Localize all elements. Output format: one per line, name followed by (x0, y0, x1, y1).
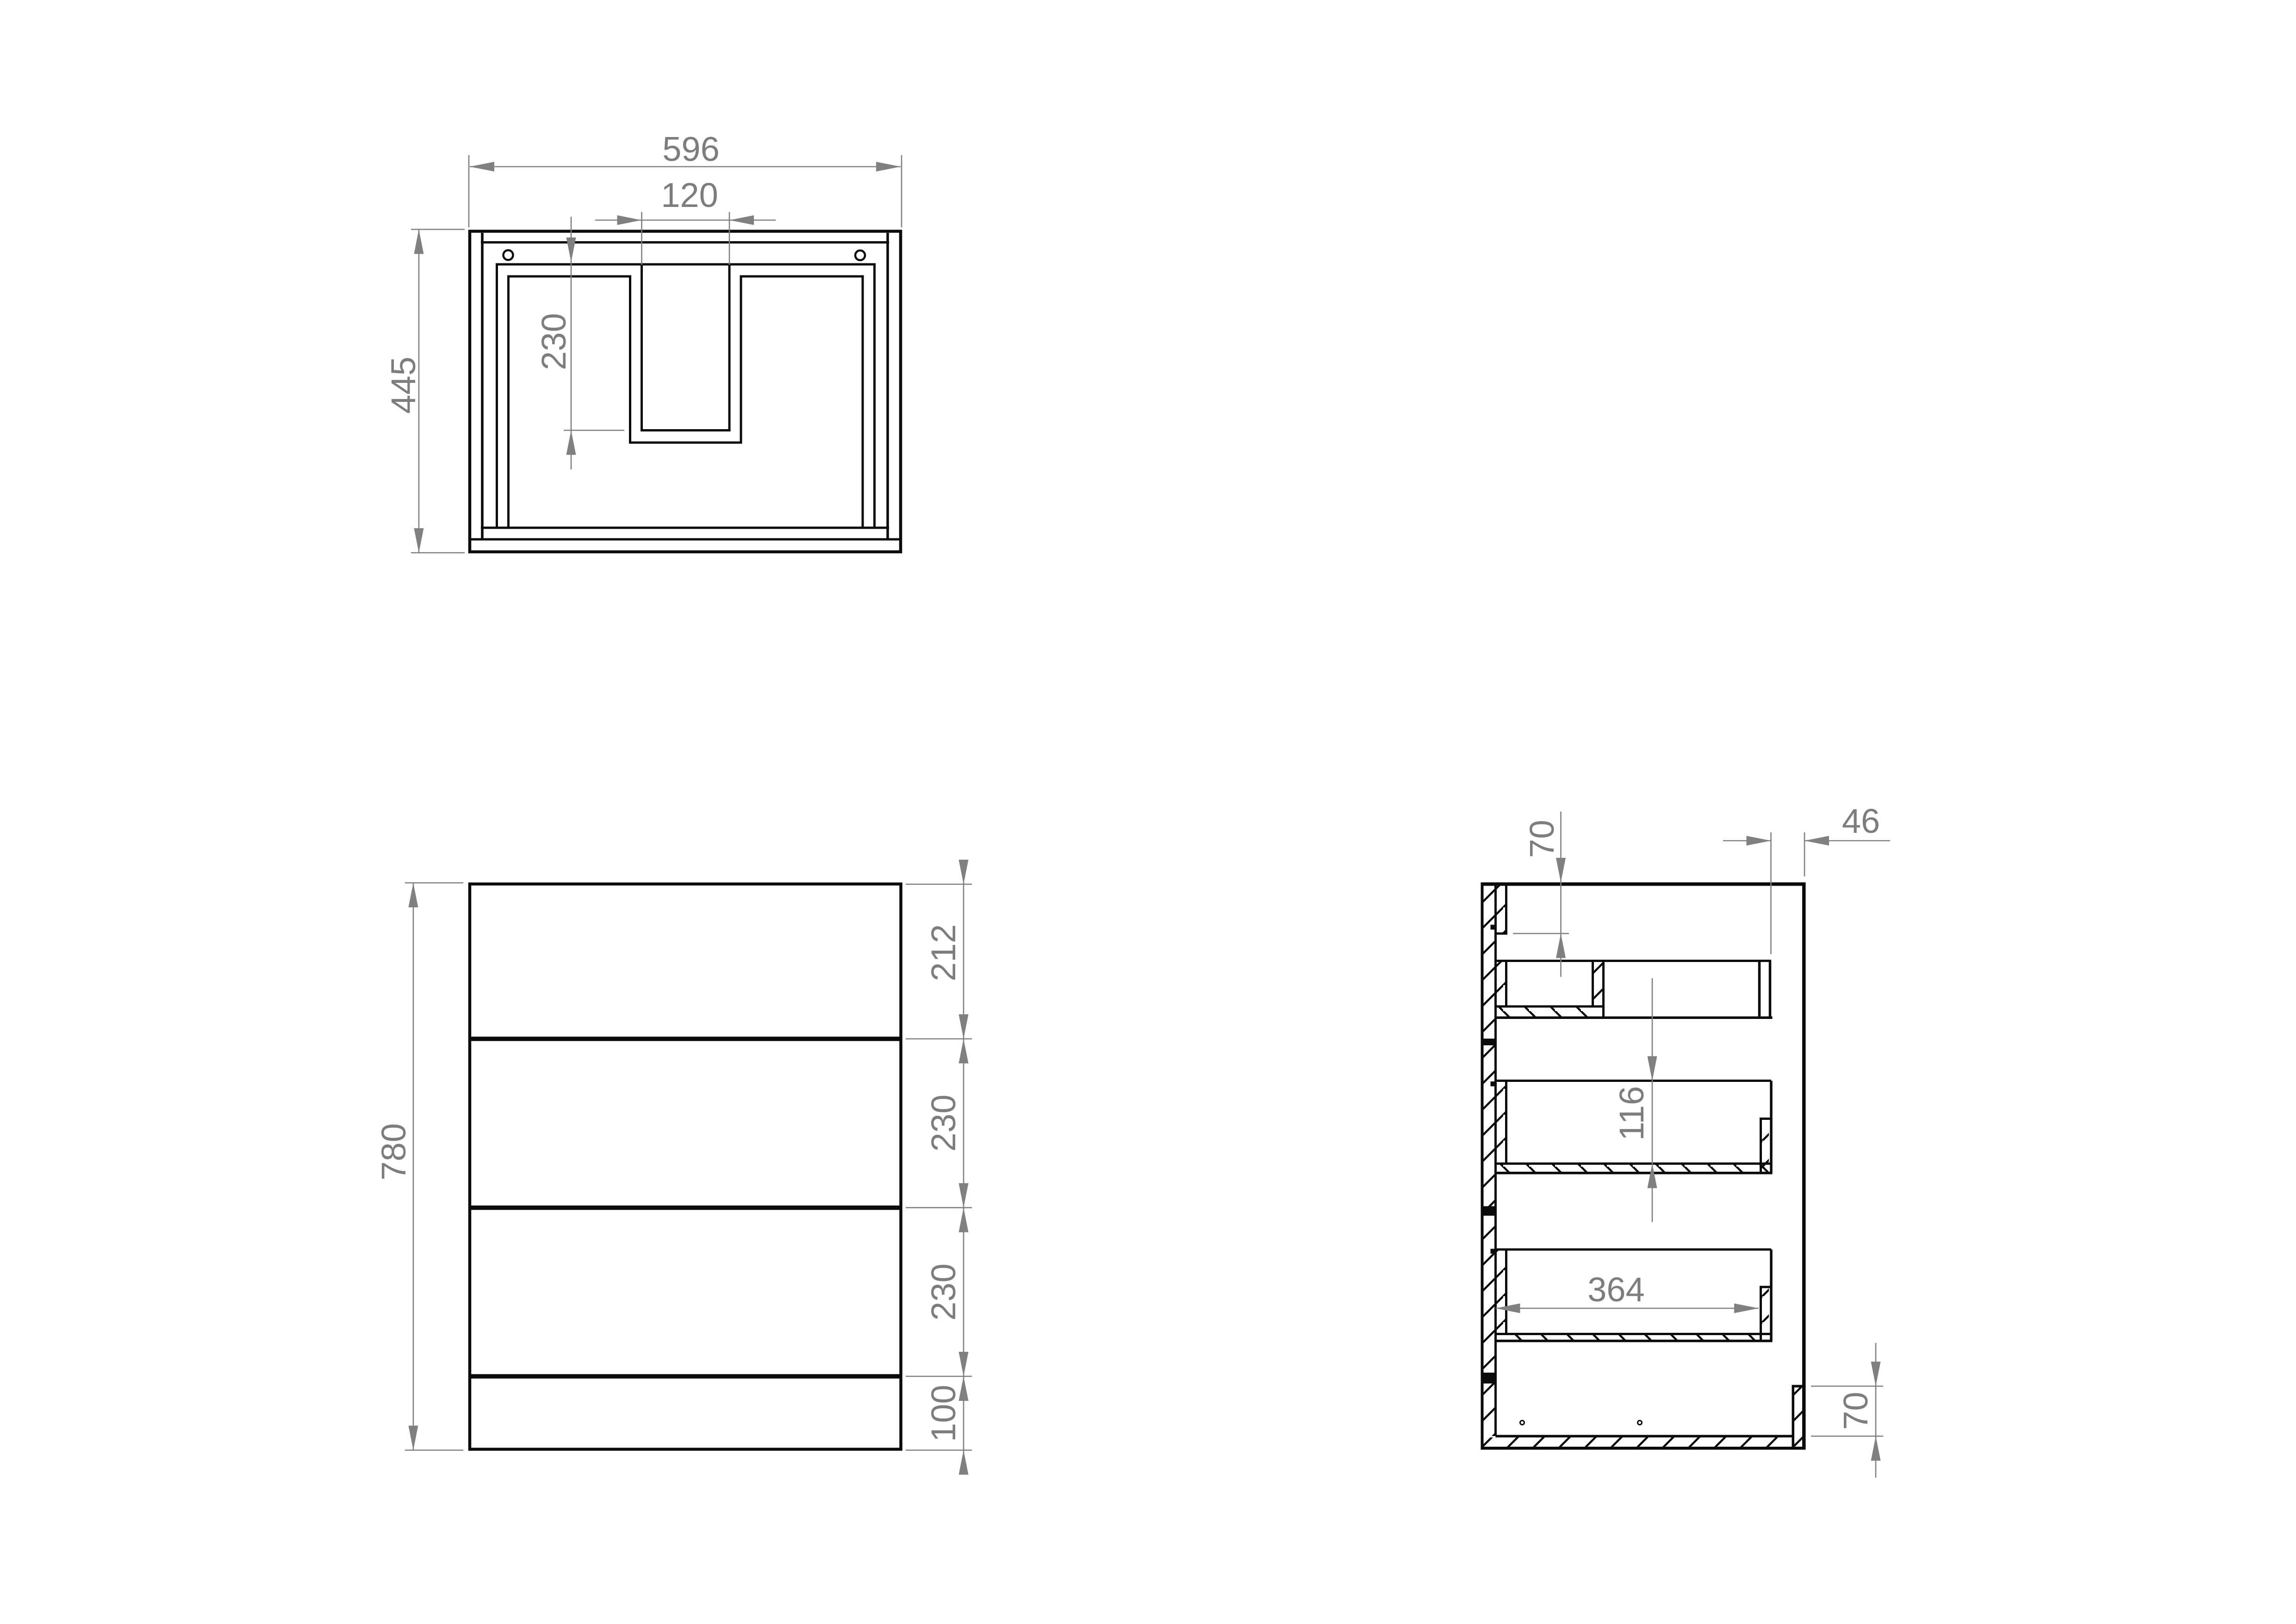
svg-text:70: 70 (1523, 820, 1561, 858)
svg-text:212: 212 (924, 924, 963, 981)
svg-text:70: 70 (1836, 1392, 1875, 1430)
svg-text:46: 46 (1842, 802, 1880, 840)
svg-text:230: 230 (924, 1094, 963, 1151)
svg-text:596: 596 (662, 130, 719, 169)
svg-text:445: 445 (384, 356, 423, 413)
svg-text:100: 100 (924, 1385, 963, 1442)
svg-text:780: 780 (374, 1123, 413, 1180)
svg-text:364: 364 (1587, 1270, 1644, 1309)
svg-text:120: 120 (661, 176, 718, 214)
svg-text:116: 116 (1612, 1086, 1651, 1141)
svg-text:230: 230 (924, 1263, 963, 1320)
svg-text:230: 230 (535, 313, 573, 370)
